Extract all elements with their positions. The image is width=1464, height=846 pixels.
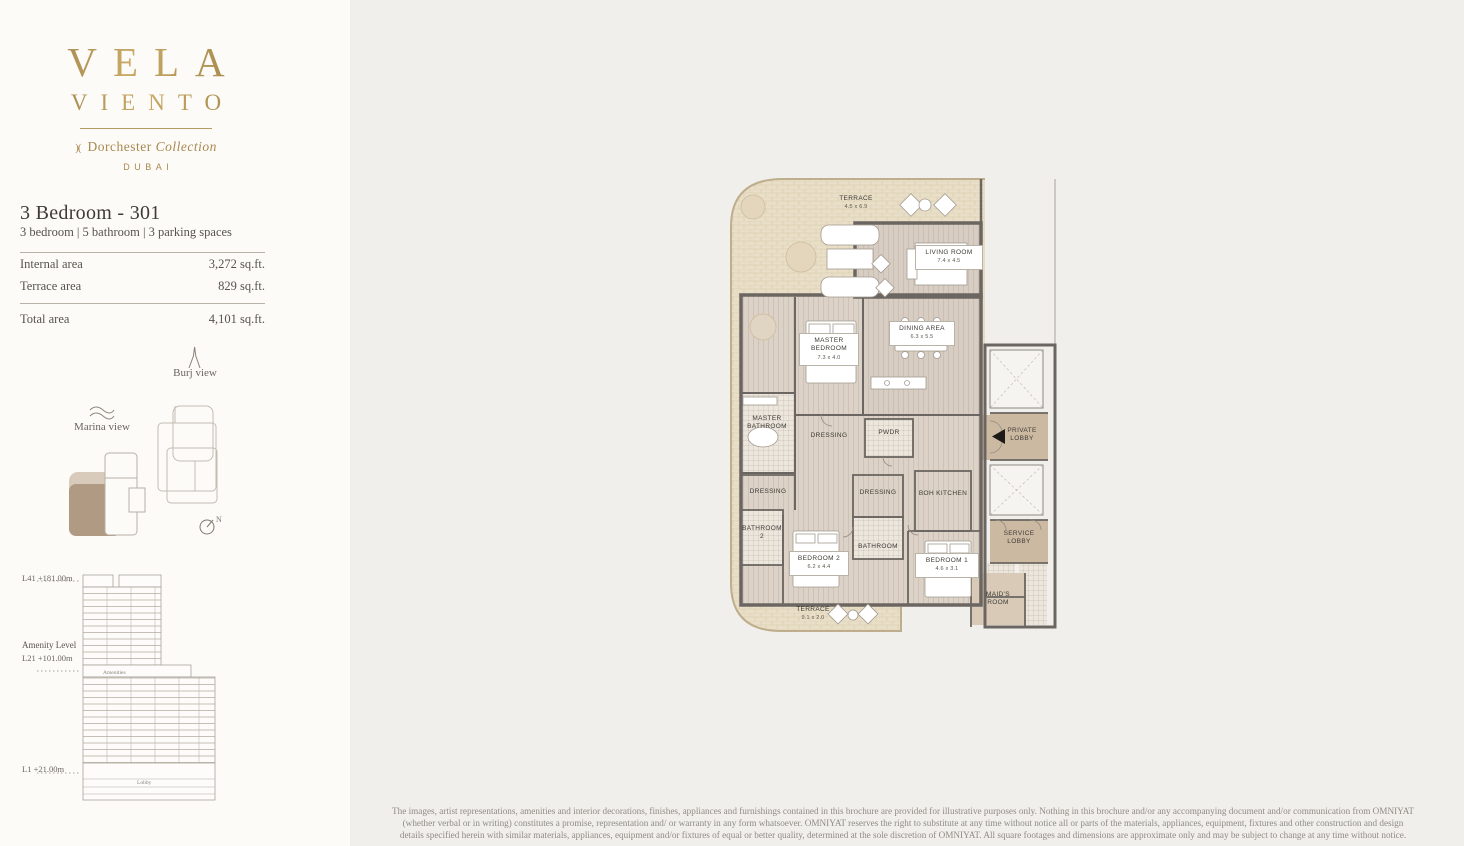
- elevation-top-label: L41 +181.00m: [22, 573, 73, 583]
- dining-chair: [902, 352, 909, 359]
- area-value: 3,272 sq.ft.: [209, 257, 265, 272]
- total-value: 4,101 sq.ft.: [209, 312, 265, 327]
- terrace-sofa: [821, 277, 879, 297]
- kitchen-island: [871, 377, 926, 389]
- collection-name: Dorchester: [87, 139, 151, 154]
- room-label-bedroom-2: BEDROOM 2 6.2 x 4.4: [789, 551, 849, 576]
- compass-icon: N: [200, 515, 222, 534]
- brand-logo: VELA VIENTO )(Dorchester Collection DUBA…: [0, 38, 292, 172]
- room-label-bedroom-1: BEDROOM 1 4.6 x 3.1: [915, 553, 979, 578]
- brand-name-line2: VIENTO: [0, 90, 292, 116]
- area-table: Internal area 3,272 sq.ft. Terrace area …: [20, 252, 265, 331]
- sink: [905, 381, 910, 386]
- room-label-dressing-mid: DRESSING: [852, 489, 904, 497]
- dining-chair: [934, 352, 941, 359]
- lobby-floor-label: Lobby: [137, 780, 152, 786]
- compass-n-label: N: [216, 515, 222, 524]
- area-label: Internal area: [20, 257, 83, 272]
- pillow: [818, 534, 837, 543]
- amenities-floor-label: Amenities: [103, 670, 126, 676]
- side-table: [848, 610, 858, 620]
- pillow: [950, 544, 969, 553]
- unit-subtitle: 3 bedroom | 5 bathroom | 3 parking space…: [20, 225, 232, 240]
- room-label-master-bathroom: MASTER BATHROOM: [741, 415, 793, 432]
- room-label-living: LIVING ROOM 7.4 x 4.5: [915, 245, 983, 270]
- elevation-amenity-label: L21 +101.00m: [22, 653, 73, 663]
- building-elevation: Amenities Lobby: [15, 567, 245, 812]
- room-label-dressing-left: DRESSING: [742, 488, 794, 496]
- room-label-private-lobby: PRIVATE LOBBY: [999, 427, 1045, 444]
- leader-lines: [37, 581, 81, 773]
- brochure-page: { "brand": { "name_line1": "VELA", "name…: [0, 0, 1464, 846]
- this-tower-outline: [105, 453, 145, 535]
- brand-name-line1: VELA: [0, 38, 292, 86]
- room-label-service-lobby: SERVICE LOBBY: [995, 530, 1043, 547]
- vanity: [743, 397, 777, 405]
- floor-plan: TERRACE 4.5 x 6.9 LIVING ROOM 7.4 x 4.5 …: [703, 165, 1063, 645]
- logo-divider: [80, 128, 212, 129]
- table-row: Terrace area 829 sq.ft.: [20, 275, 265, 297]
- area-label: Terrace area: [20, 279, 81, 294]
- table-row-total: Total area 4,101 sq.ft.: [20, 304, 265, 331]
- area-value: 829 sq.ft.: [218, 279, 265, 294]
- legal-disclaimer: The images, artist representations, amen…: [392, 806, 1414, 842]
- site-key-plan: N: [55, 398, 245, 548]
- sink: [885, 381, 890, 386]
- total-label: Total area: [20, 312, 69, 327]
- room-label-terrace-bottom: TERRACE 9.1 x 2.0: [783, 606, 843, 623]
- room-label-maids-room: MAID'S ROOM: [975, 591, 1021, 608]
- city-label: DUBAI: [0, 162, 292, 172]
- room-label-master-bedroom: MASTER BEDROOM 7.3 x 4.0: [799, 333, 859, 366]
- terrace-sofa: [821, 225, 879, 245]
- elevation-amenity-title: Amenity Level: [22, 640, 76, 650]
- neighbor-tower-outline: [158, 406, 217, 503]
- pillow: [928, 544, 947, 553]
- planter: [786, 242, 816, 272]
- room-label-bathroom-2: BATHROOM 2: [740, 525, 784, 542]
- collection-word: Collection: [156, 139, 217, 154]
- planter: [741, 195, 765, 219]
- room-label-pwdr: PWDR: [866, 429, 912, 437]
- floor-plan-drawing: [703, 165, 1063, 645]
- room-label-dressing-top: DRESSING: [803, 432, 855, 440]
- dining-chair: [918, 352, 925, 359]
- room-label-terrace-top: TERRACE 4.5 x 6.9: [821, 195, 891, 212]
- room-label-bathroom: BATHROOM: [851, 543, 905, 551]
- terrace-table: [827, 249, 873, 269]
- burj-view-label: Burj view: [158, 367, 232, 379]
- room-label-dining: DINING AREA 6.3 x 5.5: [889, 321, 955, 346]
- room-label-boh-kitchen: BOH KITCHEN: [917, 490, 969, 498]
- sidebar: VELA VIENTO )(Dorchester Collection DUBA…: [0, 0, 350, 846]
- planter: [750, 314, 776, 340]
- elevation-ground-label: L1 +21.00m: [22, 764, 64, 774]
- collection-line: )(Dorchester Collection: [0, 139, 292, 155]
- table-row: Internal area 3,272 sq.ft.: [20, 253, 265, 275]
- dorchester-mark-icon: )(: [75, 142, 80, 154]
- side-table: [919, 199, 931, 211]
- burj-spire-icon: [185, 345, 205, 369]
- page-title: 3 Bedroom - 301: [20, 202, 161, 225]
- pillow: [796, 534, 815, 543]
